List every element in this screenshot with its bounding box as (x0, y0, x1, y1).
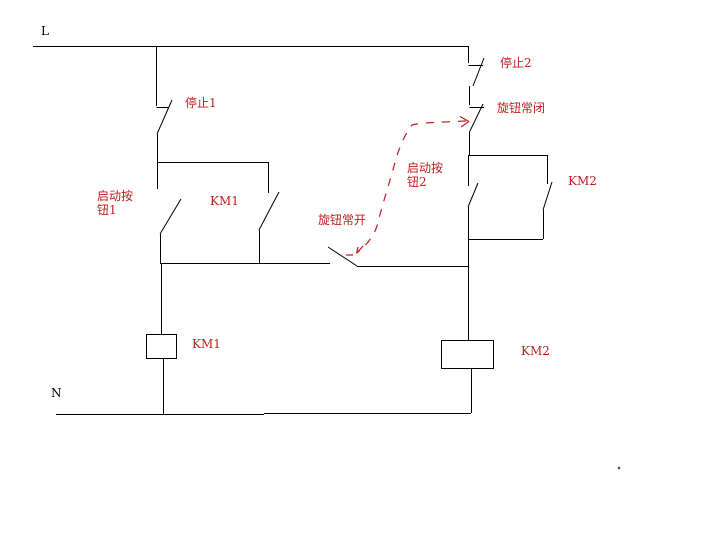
km2-coil-label: KM2 (521, 344, 550, 358)
live-rail-label: L (41, 24, 49, 38)
stop1-label: 停止1 (185, 96, 217, 110)
km1-aux-contact-symbol (259, 162, 279, 263)
km2-coil-symbol (442, 341, 494, 414)
start2-label: 启动按 钮2 (407, 161, 443, 189)
arrowhead-left (346, 246, 363, 255)
knob-no-label: 旋钮常开 (318, 213, 366, 227)
km1-aux-label: KM1 (210, 194, 239, 208)
neutral-rail-wire (56, 414, 471, 415)
knob-no-contact-symbol (328, 247, 468, 267)
circuit-diagram-canvas: L N 停止1 停止2 旋钮常闭 旋钮常开 启动按 钮1 启动按 钮2 KM1 … (0, 0, 717, 550)
km2-aux-label: KM2 (568, 174, 597, 188)
stop2-label: 停止2 (500, 56, 532, 70)
knob-nc-contact-symbol (470, 104, 485, 155)
neutral-rail-label: N (51, 386, 62, 400)
km2-aux-contact-symbol (543, 155, 552, 239)
start1-no-contact-symbol (158, 162, 182, 263)
knob-nc-label: 旋钮常闭 (497, 101, 545, 115)
stray-dot (618, 467, 621, 470)
stop1-nc-contact-symbol (157, 46, 173, 162)
circuit-drawing (0, 0, 717, 550)
km1-coil-label: KM1 (192, 337, 221, 351)
start1-label: 启动按 钮1 (97, 189, 133, 217)
km1-coil-symbol (147, 263, 177, 414)
start2-no-contact-symbol (468, 155, 478, 207)
stop2-nc-contact-symbol (469, 46, 485, 105)
